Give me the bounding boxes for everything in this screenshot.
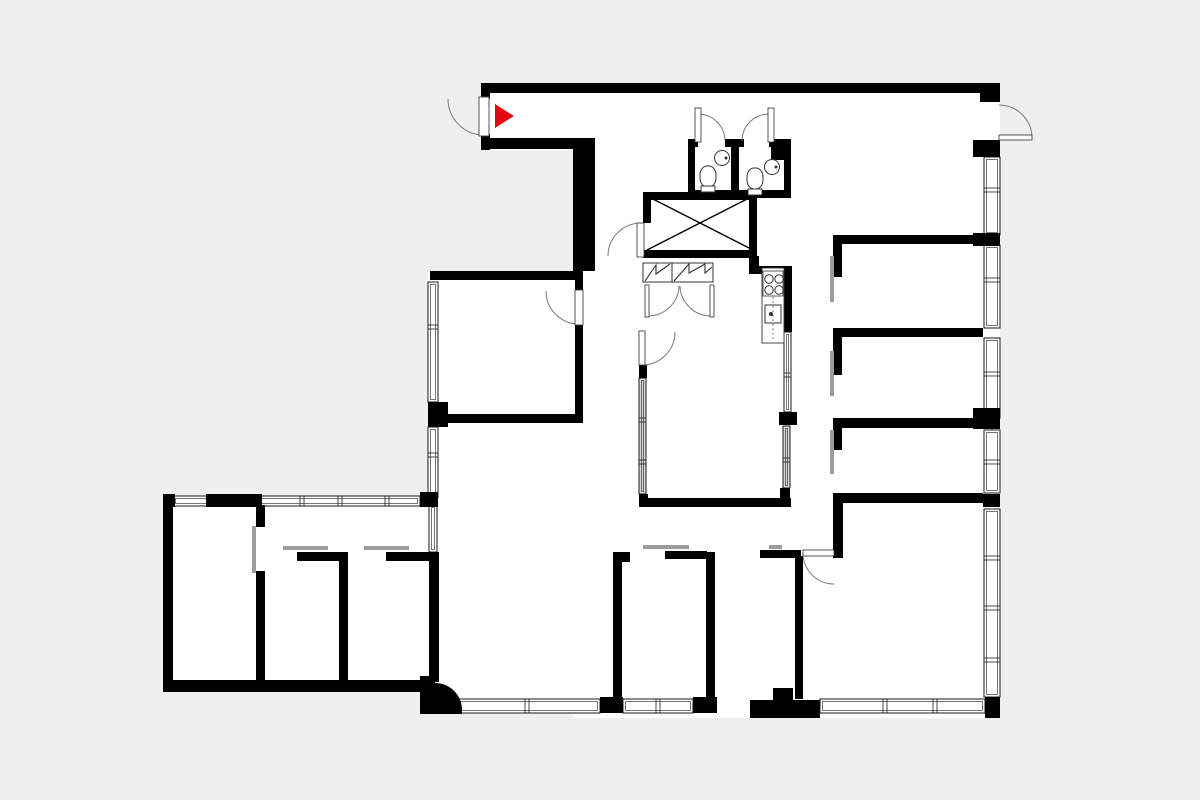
- window: [623, 699, 693, 713]
- wall-segment: [833, 493, 843, 558]
- wall-segment: [297, 552, 343, 561]
- stairwell-door-leaf: [637, 223, 644, 257]
- left-room-door-leaf: [575, 290, 583, 325]
- wall-segment: [386, 552, 434, 561]
- wall-segment: [600, 697, 623, 713]
- toilet-base: [748, 189, 762, 195]
- wall-segment: [428, 402, 448, 427]
- floor-slab: [163, 497, 438, 692]
- wall-segment: [256, 505, 265, 527]
- window: [820, 699, 985, 713]
- wall-segment: [833, 427, 842, 450]
- wall-segment: [256, 571, 265, 692]
- sliding-door: [830, 351, 834, 396]
- wall-segment: [429, 552, 439, 682]
- wardrobe-door-right-leaf: [710, 285, 714, 317]
- wall-segment: [795, 556, 803, 699]
- wall-segment: [613, 552, 622, 702]
- wall-segment: [833, 235, 983, 244]
- wall-segment: [430, 271, 583, 280]
- wc-right-door-leaf: [768, 108, 774, 142]
- window: [428, 427, 438, 497]
- sliding-door: [364, 546, 409, 550]
- wall-segment: [446, 414, 583, 423]
- wall-segment: [973, 408, 1000, 429]
- sliding-door: [830, 430, 834, 474]
- wardrobe-door-left-leaf: [645, 285, 649, 317]
- wall-segment: [760, 550, 801, 558]
- wall-segment: [773, 688, 793, 702]
- sliding-door: [643, 545, 689, 549]
- wall-segment: [833, 337, 842, 375]
- wall-segment: [665, 551, 707, 559]
- wall-segment: [206, 494, 262, 507]
- floor-plan-page: [0, 0, 1200, 800]
- wall-segment: [643, 250, 757, 258]
- wall-segment: [750, 700, 820, 718]
- wall-segment: [784, 268, 792, 332]
- toilet-icon: [700, 166, 716, 187]
- floor-slab: [420, 497, 580, 713]
- sink-tap-dot: [769, 312, 773, 316]
- window: [455, 699, 600, 713]
- wall-segment: [833, 328, 983, 337]
- glass-partition: [639, 378, 646, 494]
- wall-segment: [573, 149, 595, 271]
- window: [429, 505, 437, 552]
- wall-segment: [163, 497, 173, 692]
- wall-segment: [420, 492, 438, 507]
- terrace-door-leaf: [999, 135, 1032, 140]
- wall-segment: [640, 498, 791, 507]
- window: [784, 332, 791, 412]
- glass-partition: [783, 426, 790, 488]
- kitchen: [762, 268, 784, 343]
- wall-segment: [163, 680, 435, 692]
- floor-slab: [428, 272, 583, 497]
- wall-segment: [973, 140, 1000, 157]
- entrance-door-leaf: [479, 97, 489, 136]
- bottom-right-room-door-leaf: [803, 550, 834, 556]
- basin-tap-dot: [725, 157, 728, 160]
- toilet-base: [701, 186, 715, 192]
- wall-segment: [833, 244, 842, 277]
- wall-segment: [973, 233, 1000, 246]
- floor-plan-drawing: [0, 0, 1200, 800]
- sliding-door: [830, 256, 834, 302]
- wall-segment: [575, 324, 583, 420]
- wall-segment: [779, 412, 797, 425]
- wall-segment: [481, 138, 595, 149]
- wall-segment: [339, 552, 348, 682]
- wall-segment: [688, 139, 695, 198]
- wall-segment: [784, 139, 791, 198]
- wc-left-door-leaf: [695, 108, 701, 142]
- wall-segment: [833, 418, 983, 428]
- wall-segment: [833, 493, 983, 503]
- sliding-door: [283, 546, 328, 550]
- wall-segment: [731, 140, 739, 196]
- toilet-icon: [747, 168, 763, 189]
- sliding-door: [769, 545, 782, 549]
- wall-segment: [980, 83, 1000, 102]
- sliding-door: [252, 526, 256, 573]
- wall-segment: [706, 552, 715, 702]
- wall-segment: [983, 494, 1000, 507]
- wall-segment: [639, 365, 647, 378]
- window: [428, 282, 438, 402]
- wall-segment: [693, 697, 717, 713]
- basin-tap-dot: [775, 166, 778, 169]
- living-room-door-leaf: [639, 331, 645, 365]
- wall-segment: [482, 83, 1000, 93]
- wall-segment: [985, 697, 1000, 718]
